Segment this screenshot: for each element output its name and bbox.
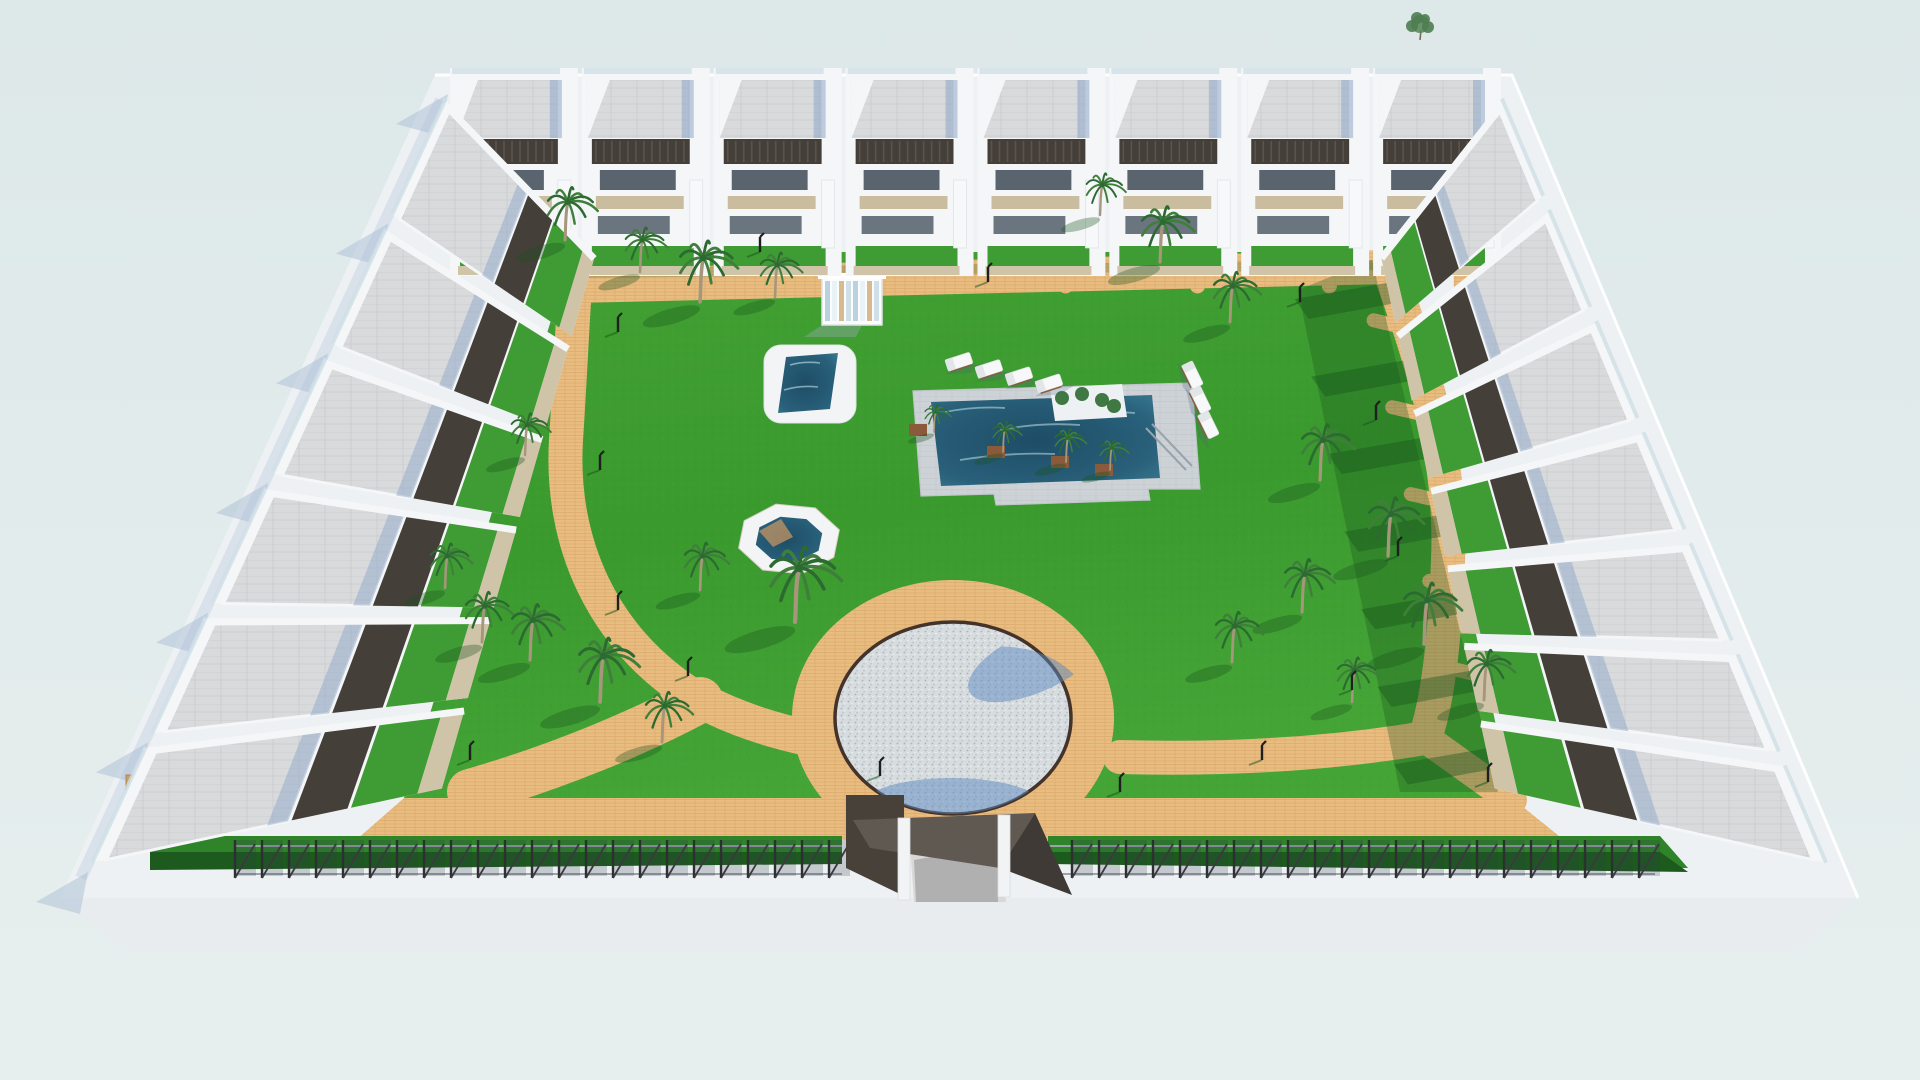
- lower-window: [862, 216, 934, 234]
- roof-shade: [682, 80, 694, 138]
- cabana-glass-stripe: [853, 281, 858, 321]
- exterior-stair: [1085, 180, 1098, 248]
- upper-terrace: [596, 196, 684, 209]
- fence-panel: [1153, 840, 1174, 876]
- front-garden: [988, 246, 1090, 268]
- party-wall: [204, 621, 490, 622]
- pergola-band: [856, 139, 954, 164]
- fence-panel: [1207, 840, 1228, 876]
- fence-panel: [451, 840, 472, 876]
- cabana-frame: [822, 277, 882, 325]
- townhouse-unit-top: [714, 68, 842, 276]
- cabana-glass-stripe: [860, 281, 865, 321]
- island-plant: [1107, 399, 1121, 413]
- upper-window: [1127, 170, 1203, 190]
- fence-panel: [613, 840, 634, 876]
- front-garden: [592, 246, 694, 268]
- upper-terrace: [728, 196, 816, 209]
- fence-panel: [1639, 840, 1660, 876]
- roof-glass-balustrade: [584, 68, 692, 74]
- exterior-stair: [690, 180, 703, 248]
- townhouse-unit-top: [978, 68, 1106, 276]
- cabana-glass-stripe: [867, 281, 872, 321]
- island-plant: [1075, 387, 1089, 401]
- fence-panel: [1180, 840, 1201, 876]
- exterior-stair: [954, 180, 967, 248]
- fence-panel: [370, 840, 391, 876]
- roof-glass-balustrade: [980, 68, 1088, 74]
- upper-window: [732, 170, 808, 190]
- exterior-stair: [1217, 180, 1230, 248]
- platform-front-face: [60, 898, 1858, 952]
- fence-panel: [397, 840, 418, 876]
- roof-glass-balustrade: [1375, 68, 1483, 74]
- fence-panel: [1315, 840, 1336, 876]
- path-bottom-right: [1120, 738, 1425, 758]
- fence-panel: [235, 840, 256, 876]
- roof-shade: [550, 80, 562, 138]
- fence-panel: [1234, 840, 1255, 876]
- fence-panel: [478, 840, 499, 876]
- pergola-band: [724, 139, 822, 164]
- upper-window: [864, 170, 940, 190]
- fence-panel: [667, 840, 688, 876]
- fence-panel: [1450, 840, 1471, 876]
- fence-panel: [1504, 840, 1525, 876]
- gate-pillar: [998, 815, 1010, 897]
- garden-wall: [854, 266, 960, 275]
- gate-pillar: [898, 818, 910, 900]
- fence-panel: [424, 840, 445, 876]
- fence-panel: [694, 840, 715, 876]
- render-canvas: [0, 0, 1920, 1080]
- upper-window: [1259, 170, 1335, 190]
- fence-panel: [1477, 840, 1498, 876]
- render-stage: [0, 0, 1920, 1080]
- fence-panel: [262, 840, 283, 876]
- front-garden: [1251, 246, 1353, 268]
- fence-panel: [1342, 840, 1363, 876]
- fence-panel: [640, 840, 661, 876]
- upper-terrace: [992, 196, 1080, 209]
- pergola-band: [988, 139, 1086, 164]
- fence-panel: [775, 840, 796, 876]
- exterior-stair: [1349, 180, 1362, 248]
- fence-panel: [1612, 840, 1633, 876]
- pergola-band: [592, 139, 690, 164]
- fence-panel: [1531, 840, 1552, 876]
- fence-panel: [748, 840, 769, 876]
- upper-terrace: [860, 196, 948, 209]
- fence-panel: [1288, 840, 1309, 876]
- roof-shade: [946, 80, 958, 138]
- fence-panel: [559, 840, 580, 876]
- fence-panel: [1423, 840, 1444, 876]
- exterior-stair: [822, 180, 835, 248]
- fence-panel: [505, 840, 526, 876]
- upper-window: [600, 170, 676, 190]
- fence-panel: [1072, 840, 1093, 876]
- roof-glass-balustrade: [452, 68, 560, 74]
- townhouse-unit-top: [1109, 68, 1237, 276]
- upper-terrace: [1255, 196, 1343, 209]
- fence-panel: [1585, 840, 1606, 876]
- cabana-glass-stripe: [825, 281, 830, 321]
- lower-window: [994, 216, 1066, 234]
- cabana-glass-stripe: [832, 281, 837, 321]
- front-garden: [1119, 246, 1221, 268]
- fence-panel: [1558, 840, 1579, 876]
- upper-window: [996, 170, 1072, 190]
- fence-panel: [532, 840, 553, 876]
- cabana-glass-stripe: [846, 281, 851, 321]
- roof-shade: [1209, 80, 1221, 138]
- roof-shade: [1341, 80, 1353, 138]
- fence-panel: [1396, 840, 1417, 876]
- roof-shade: [814, 80, 826, 138]
- island-plant: [1095, 393, 1109, 407]
- garden-wall: [1249, 266, 1355, 275]
- townhouse-unit-top: [846, 68, 974, 276]
- fence-panel: [586, 840, 607, 876]
- fence-panel: [343, 840, 364, 876]
- fence-panel: [1261, 840, 1282, 876]
- pergola-band: [1119, 139, 1217, 164]
- townhouse-unit-top: [1241, 68, 1369, 276]
- roof-glass-balustrade: [1111, 68, 1219, 74]
- front-garden: [856, 246, 958, 268]
- fence-panel: [1369, 840, 1390, 876]
- fence-panel: [289, 840, 310, 876]
- cabana-glass-stripe: [874, 281, 879, 321]
- lower-window: [1257, 216, 1329, 234]
- roof-glass-balustrade: [716, 68, 824, 74]
- fence-panel: [802, 840, 823, 876]
- pergola-band: [1251, 139, 1349, 164]
- fence-panel: [1126, 840, 1147, 876]
- roof-glass-balustrade: [848, 68, 956, 74]
- fence-panel: [316, 840, 337, 876]
- garden-wall: [986, 266, 1092, 275]
- roof-shade: [1077, 80, 1089, 138]
- fence-panel: [1099, 840, 1120, 876]
- roof-glass-balustrade: [1243, 68, 1351, 74]
- fence-panel: [721, 840, 742, 876]
- cabana-glass-stripe: [839, 281, 844, 321]
- lower-window: [730, 216, 802, 234]
